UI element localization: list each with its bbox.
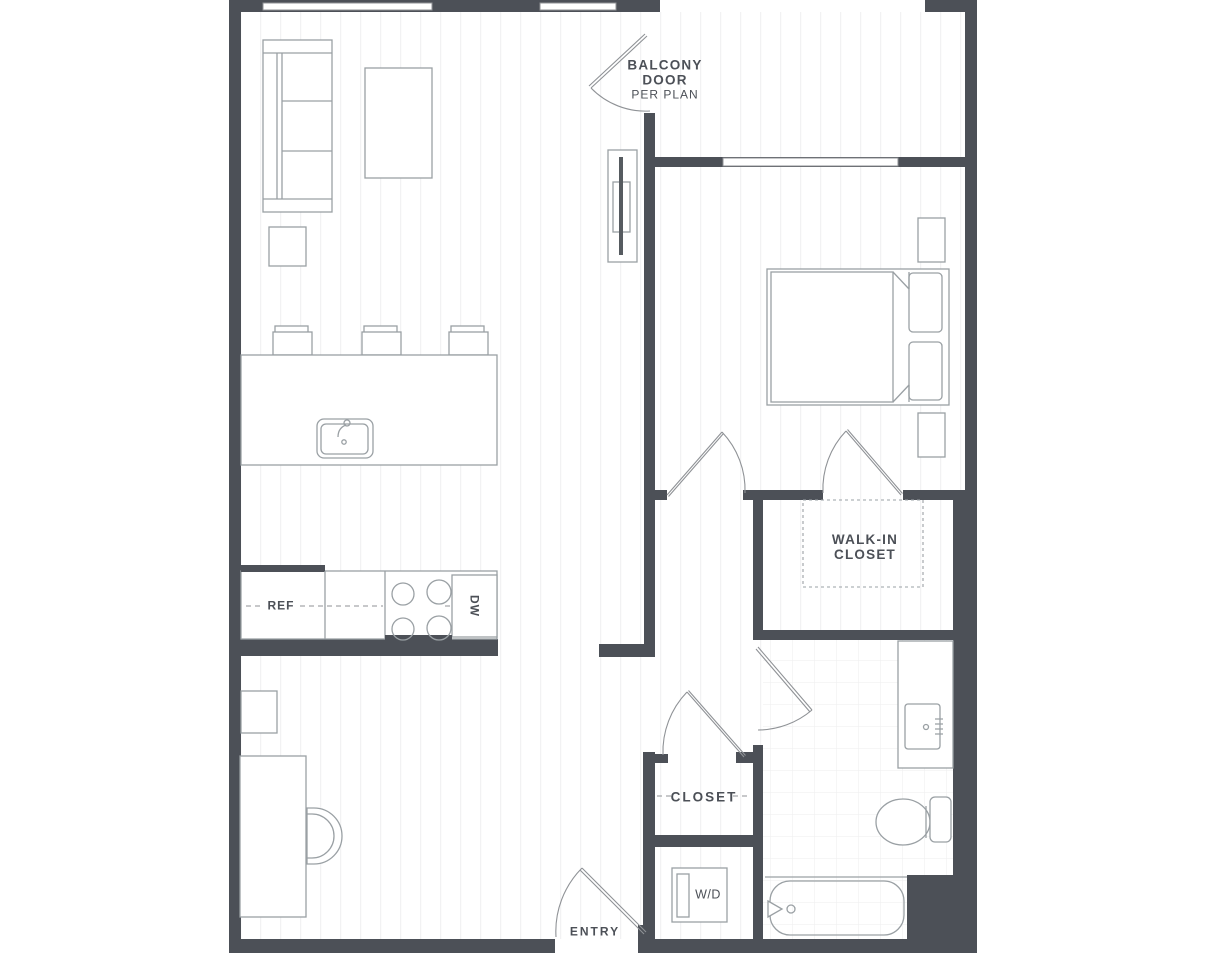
wall-bath-hall: [753, 745, 763, 953]
bar-stool: [449, 326, 488, 355]
nightstand: [918, 218, 945, 262]
wall-walkin-bottom: [753, 630, 965, 640]
balcony-door-label: BALCONY DOOR PER PLAN: [627, 58, 702, 103]
toilet-tank: [930, 797, 951, 842]
tv-screen: [619, 157, 623, 255]
bedroom-door-jamb: [644, 490, 667, 500]
bed: [767, 269, 949, 405]
tv-console: [608, 150, 637, 262]
wall-bottom-left: [229, 939, 555, 953]
wall-left: [229, 0, 241, 953]
closet-jamb-right: [736, 752, 763, 763]
wall-closet-left: [643, 752, 655, 953]
wall-bottom-right: [653, 939, 977, 953]
balcony-door-line2: DOOR: [627, 73, 702, 88]
entry-label: ENTRY: [570, 925, 620, 940]
wall-walkin-left: [753, 500, 763, 640]
window-living-1: [263, 3, 432, 10]
wall-kitchen: [229, 639, 498, 656]
refrigerator-label: REF: [268, 599, 295, 614]
kitchen-island: [241, 355, 497, 465]
window-bedroom: [723, 158, 898, 166]
bar-stool: [273, 326, 312, 355]
wall-right-lower: [953, 490, 977, 953]
closet-jamb-left: [643, 754, 668, 763]
bar-stool: [362, 326, 401, 355]
side-table: [269, 227, 306, 266]
wall-middle: [644, 113, 655, 657]
den-side-table: [241, 691, 277, 733]
floor-plan: BALCONY DOOR PER PLAN WALK-IN CLOSET CLO…: [0, 0, 1209, 960]
walk-in-closet-label: WALK-IN CLOSET: [832, 532, 898, 562]
sofa: [263, 40, 332, 212]
vanity: [898, 641, 953, 768]
wall-bedroom-bottom-b: [903, 490, 965, 500]
wall-bedroom-bottom-a: [743, 490, 823, 500]
wall-right-upper: [965, 0, 977, 500]
balcony-door-line3: PER PLAN: [627, 88, 702, 103]
washer-dryer-label: W/D: [695, 888, 721, 903]
coffee-table: [365, 68, 432, 178]
window-living-2: [540, 3, 616, 10]
nightstand: [918, 413, 945, 457]
floor-textures: [229, 0, 977, 953]
toilet: [876, 797, 951, 845]
desk: [240, 756, 306, 917]
dishwasher-label: DW: [467, 595, 482, 617]
wall-tub-block: [907, 875, 953, 940]
balcony-door-line1: BALCONY: [627, 58, 702, 73]
floor-plan-drawing: [0, 0, 1209, 960]
wall-closet-bottom: [643, 835, 763, 847]
closet-label: CLOSET: [671, 790, 738, 805]
